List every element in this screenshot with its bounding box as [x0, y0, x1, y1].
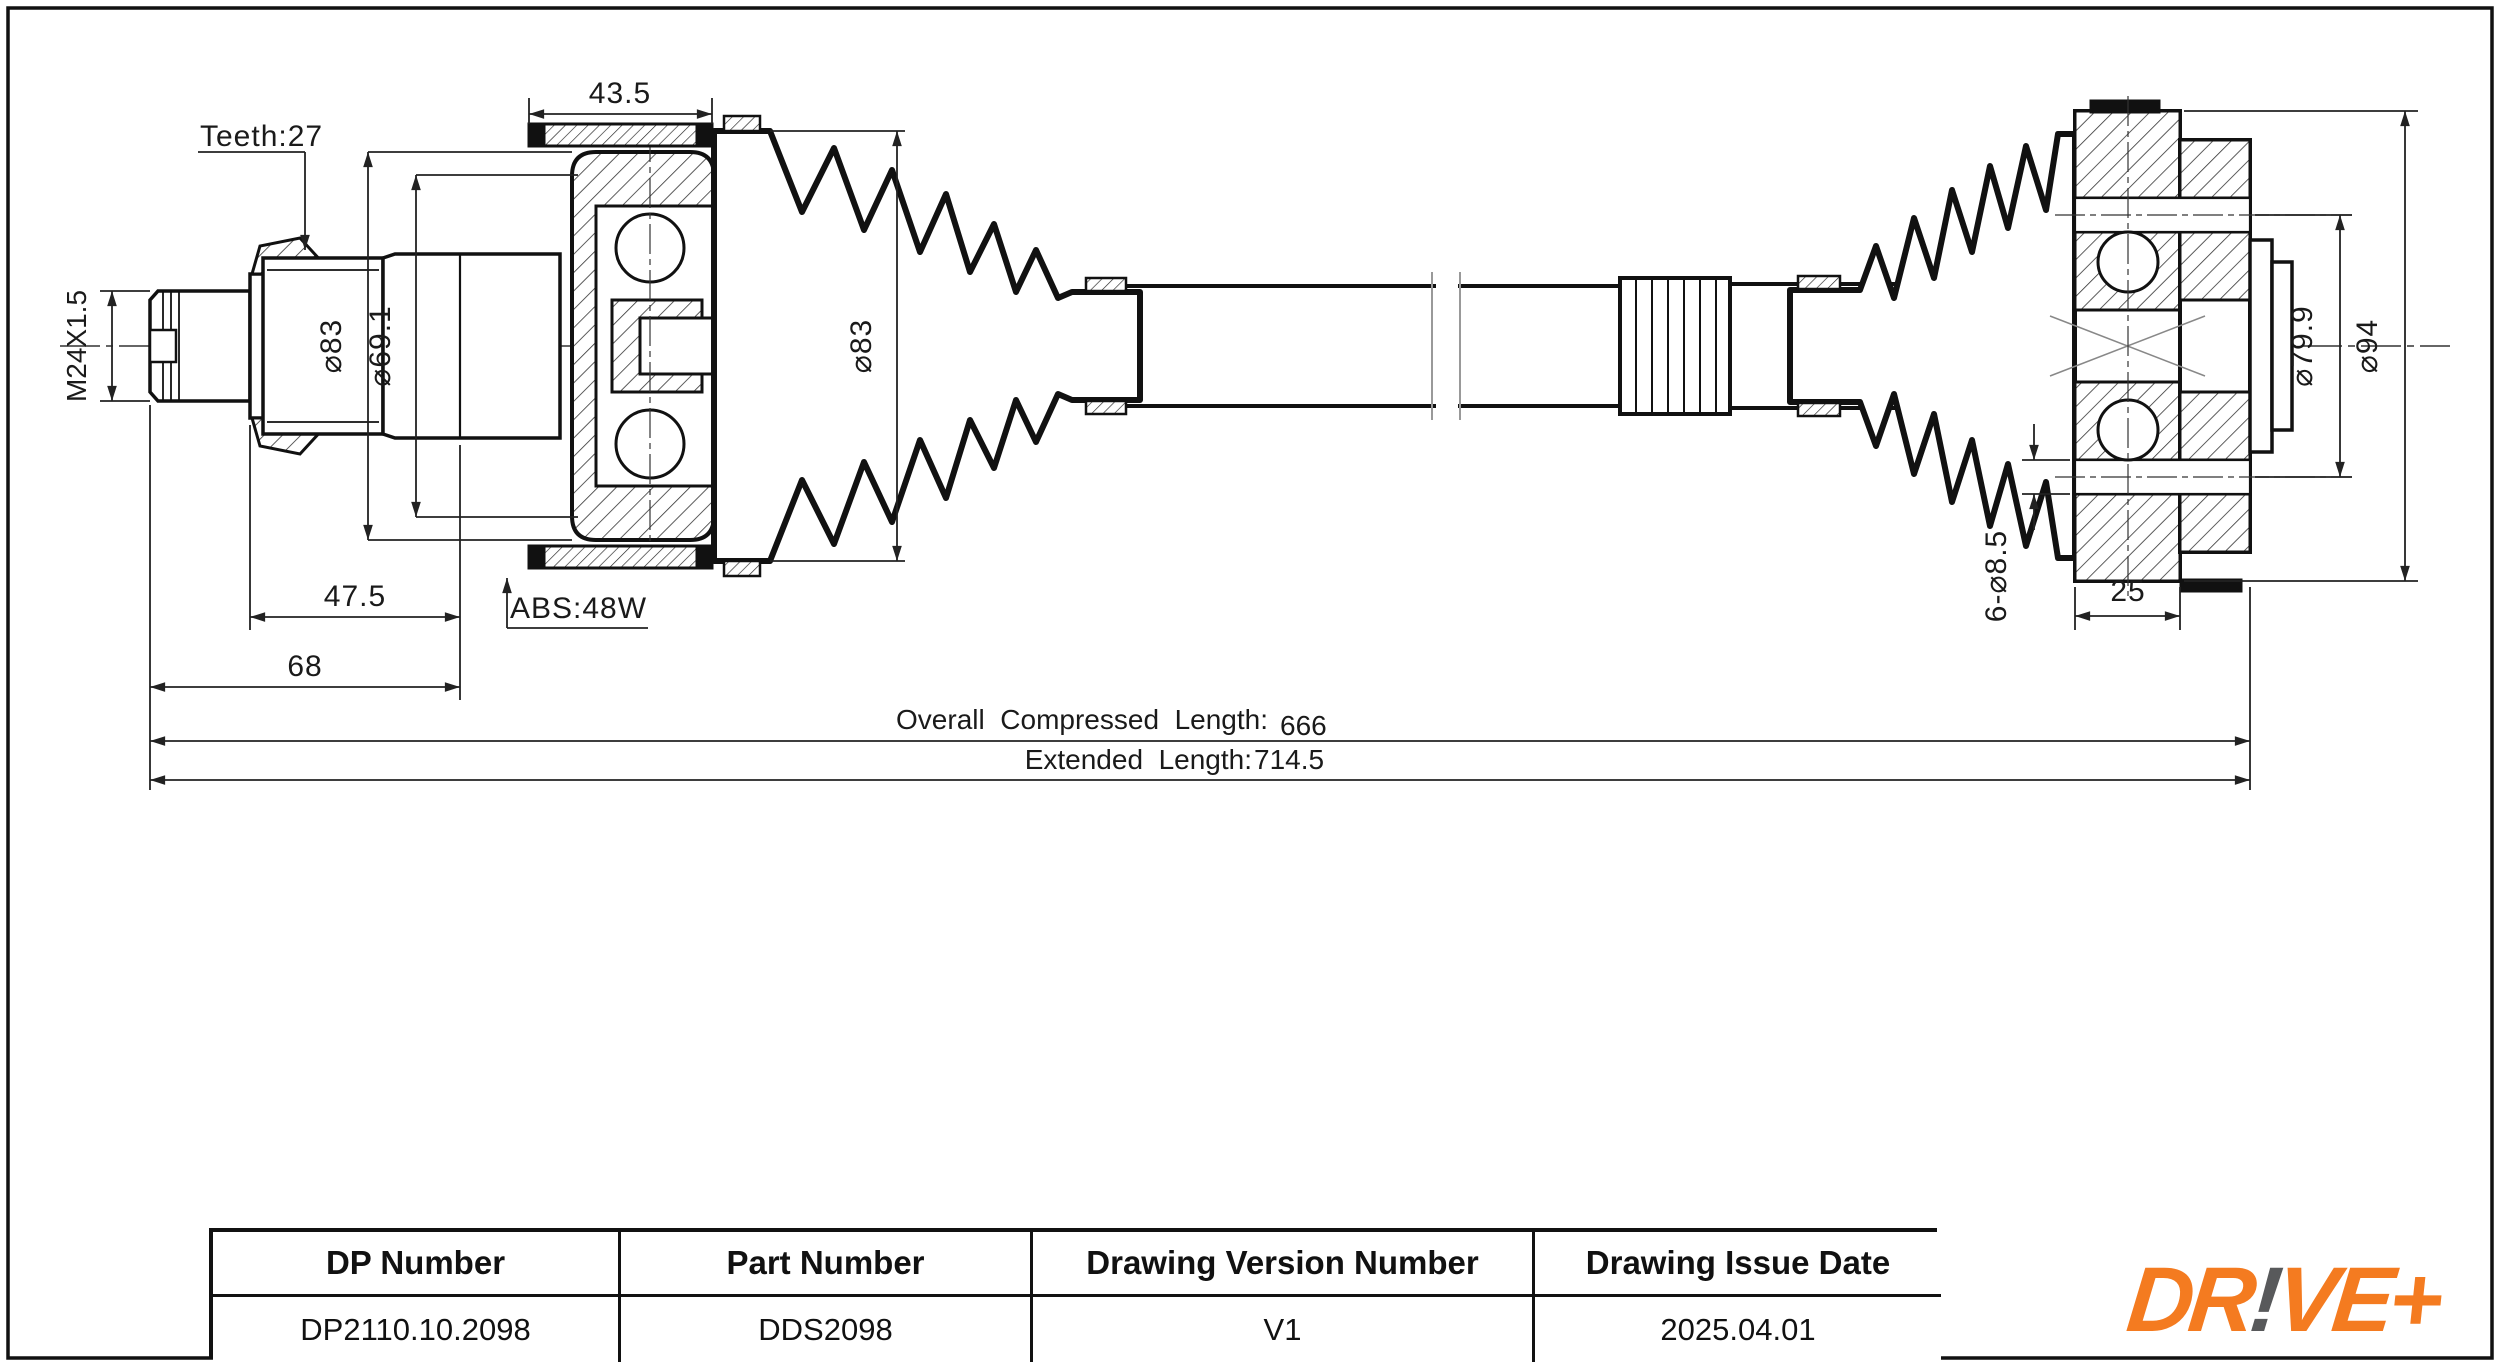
drawing-version-header: Drawing Version Number — [1033, 1232, 1535, 1297]
compressed-length-value: 666 — [1280, 710, 1327, 741]
boot-clamp — [724, 116, 760, 131]
dim-joint-id-text: ⌀69.1 — [364, 305, 397, 386]
dim-joint-od-text: ⌀83 — [315, 319, 348, 373]
boot-clamp — [1798, 276, 1840, 289]
part-number-value: DDS2098 — [621, 1297, 1033, 1362]
shaft-end — [640, 318, 714, 374]
abs-label-text: ABS:48W — [510, 592, 647, 625]
dim-thread-spec-text: M24X1.5 — [61, 290, 92, 402]
dim-stub-length — [150, 405, 460, 790]
extended-length-value: 714.5 — [1254, 744, 1324, 775]
boot-clamp — [1086, 278, 1126, 291]
drawing-version-value: V1 — [1033, 1297, 1535, 1362]
boot-clamp — [1086, 401, 1126, 414]
balance-weight — [2090, 100, 2160, 113]
logo-dr: DR — [2122, 1248, 2256, 1353]
drive-plus-logo: DR!VE+ — [2072, 1246, 2493, 1354]
dp-number-value: DP2110.10.2098 — [213, 1297, 621, 1362]
issue-date-header: Drawing Issue Date — [1535, 1232, 1941, 1297]
part-number-header: Part Number — [621, 1232, 1033, 1297]
threaded-stub — [150, 291, 250, 401]
shaft-break-gap — [1436, 282, 1458, 410]
axle-technical-drawing: 43.5 M24X1.5 ⌀83 ⌀69.1 ⌀83 47.5 68 Teeth… — [0, 0, 2500, 1363]
boot-clamp — [1798, 403, 1840, 416]
title-block: DP Number Part Number Drawing Version Nu… — [209, 1228, 1937, 1358]
joint-neck-section — [383, 254, 560, 438]
issue-date-value: 2025.04.01 — [1535, 1297, 1941, 1362]
leader-teeth — [198, 152, 305, 250]
dim-boot-od-text: ⌀83 — [845, 319, 878, 373]
dim-spline-length-text: 47.5 — [324, 580, 386, 613]
drawing-sheet: 43.5 M24X1.5 ⌀83 ⌀69.1 ⌀83 47.5 68 Teeth… — [0, 0, 2500, 1363]
dim-hub-width-text: 25 — [2110, 575, 2145, 608]
boot-clamp — [724, 561, 760, 576]
dim-bolt-holes-text: 6-⌀8.5 — [1980, 530, 2013, 622]
dim-flange-od-text: ⌀94 — [2351, 319, 2384, 373]
dim-bolt-circle-text: ⌀79.9 — [2286, 305, 2319, 386]
left-cv-boot — [714, 116, 1140, 576]
dim-spline-length — [250, 425, 460, 700]
compressed-length-label: Overall Compressed Length: — [896, 704, 1268, 735]
dim-stub-length-text: 68 — [287, 650, 322, 683]
cotter-notch — [150, 330, 176, 362]
teeth-label-text: Teeth:27 — [200, 120, 323, 153]
pilot-step — [2250, 240, 2272, 452]
dp-number-header: DP Number — [213, 1232, 621, 1297]
extended-length-label: Extended Length: — [1025, 744, 1252, 775]
dim-abs-ring-width-text: 43.5 — [589, 77, 651, 110]
logo-veplus: VE+ — [2271, 1248, 2443, 1353]
